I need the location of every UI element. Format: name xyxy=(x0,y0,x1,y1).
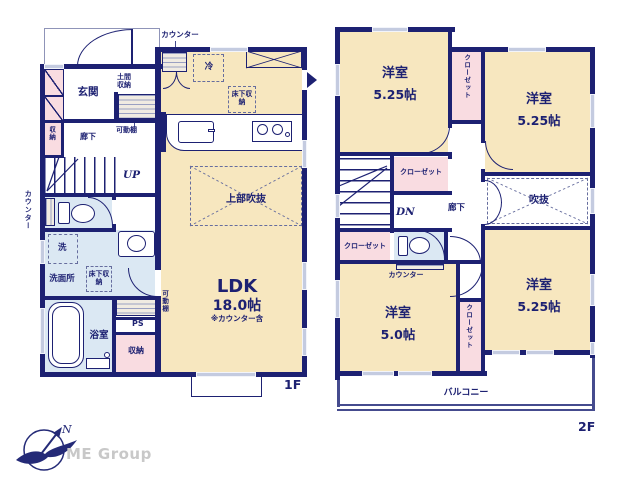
toilet-counter-1f xyxy=(45,198,55,226)
label-counter-2f: カウンター xyxy=(382,271,430,279)
label-room-tr-size: 5.25帖 xyxy=(510,114,568,129)
balcony-rail xyxy=(337,377,340,407)
label-room-br-size: 5.25帖 xyxy=(510,300,568,315)
door-arc xyxy=(450,236,481,263)
window-marker xyxy=(590,274,595,306)
label-atrium: 吹抜 xyxy=(518,195,560,207)
door-arc xyxy=(450,264,483,297)
label-closet-hall: クローゼット xyxy=(394,168,448,176)
wall xyxy=(114,92,118,120)
balcony-rail xyxy=(337,409,595,411)
wall xyxy=(116,332,156,335)
label-closet-top: クローゼット xyxy=(462,54,470,120)
logo-text: ME Group xyxy=(66,446,152,464)
window-marker xyxy=(40,240,45,264)
service-door-marker xyxy=(307,72,317,88)
movable-shelf-unit xyxy=(116,298,156,316)
vanity-basin xyxy=(127,235,146,252)
label-floor2: 2F xyxy=(578,420,595,435)
label-pipe-space: PS xyxy=(132,319,144,328)
toilet-tank-2f xyxy=(398,236,408,256)
wall xyxy=(40,372,307,377)
window-marker xyxy=(302,140,307,168)
label-underfloor-kitchen: 床下収納 xyxy=(231,90,253,106)
wall xyxy=(40,228,116,232)
window-marker xyxy=(210,47,248,52)
balcony-rail xyxy=(337,404,595,406)
label-room-br-name: 洋室 xyxy=(516,278,562,293)
window-marker xyxy=(44,64,64,69)
label-balcony: バルコニー xyxy=(430,388,502,399)
window-marker xyxy=(590,342,595,355)
stairs-2f-winder-lines xyxy=(339,158,390,228)
wall xyxy=(456,298,485,302)
label-doma-storage: 土間収納 xyxy=(114,73,134,90)
floorplan-canvas: カウンター 土間収納 可動棚 玄関 収納 廊下 UP カウンター 洗 洗面所 床… xyxy=(0,0,640,480)
bath-faucet xyxy=(104,352,110,358)
label-hallway-2f: 廊下 xyxy=(448,203,465,213)
label-room-tl-size: 5.25帖 xyxy=(366,88,424,103)
wall xyxy=(448,120,485,124)
wall xyxy=(40,193,161,197)
label-ldk-name: LDK xyxy=(207,276,267,297)
label-movable-shelf-bottom: 可動棚 xyxy=(160,290,168,328)
toilet-tank-1f xyxy=(58,202,70,224)
label-fridge: 冷 xyxy=(200,62,218,72)
label-stairs-down: DN xyxy=(396,206,415,218)
bath-fixture xyxy=(86,358,110,369)
kitchen-wall-stub xyxy=(161,112,166,152)
wall xyxy=(483,226,595,230)
label-closet-left: クローゼット xyxy=(340,242,390,250)
shoe-cabinet-cell xyxy=(44,69,64,96)
label-atrium-upper: 上部吹抜 xyxy=(200,194,292,206)
window-marker xyxy=(362,371,394,376)
label-washer: 洗 xyxy=(58,243,67,253)
label-stairs-up: UP xyxy=(123,169,140,181)
label-counter-top: カウンター xyxy=(148,31,212,40)
label-entrance: 玄関 xyxy=(70,86,106,98)
label-counter-left: カウンター xyxy=(24,190,32,254)
kitchen-sink xyxy=(178,121,214,143)
window-marker xyxy=(196,372,256,377)
balcony-rail xyxy=(592,355,595,411)
window-marker xyxy=(40,308,45,354)
stove-burner xyxy=(257,124,268,135)
window-marker xyxy=(590,94,595,128)
wall xyxy=(335,228,452,232)
window-marker xyxy=(526,350,554,355)
ldk-closet-x xyxy=(246,51,302,68)
label-room-tr-name: 洋室 xyxy=(516,92,562,107)
label-bathroom: 浴室 xyxy=(84,330,114,341)
window-marker xyxy=(398,371,432,376)
window-marker xyxy=(590,188,595,214)
label-storage-bottom: 収納 xyxy=(122,346,150,355)
window-marker xyxy=(372,27,408,32)
stairs-1f-winder-lines xyxy=(44,157,120,193)
window-marker xyxy=(335,194,340,218)
porch-step xyxy=(191,376,262,397)
wall xyxy=(390,191,452,195)
label-underfloor-washroom: 床下収納 xyxy=(88,270,110,286)
wall xyxy=(61,121,64,157)
label-movable-shelf-top: 可動棚 xyxy=(116,126,137,134)
label-room-bl-size: 5.0帖 xyxy=(373,328,423,343)
label-washroom: 洗面所 xyxy=(42,274,82,284)
wall xyxy=(483,172,595,176)
doma-shelf xyxy=(118,94,158,119)
label-hallway-1f: 廊下 xyxy=(74,132,102,141)
window-marker xyxy=(492,350,520,355)
wall xyxy=(40,296,161,300)
label-room-bl-name: 洋室 xyxy=(375,306,421,321)
window-marker xyxy=(508,47,546,52)
window-marker xyxy=(335,64,340,96)
label-floor1: 1F xyxy=(284,378,301,393)
shoe-cabinet-cell xyxy=(44,96,64,122)
label-ldk-size: 18.0帖 xyxy=(202,298,272,315)
stove-burner xyxy=(272,124,283,135)
counter-2f-unit xyxy=(396,264,444,270)
ldk-counter-unit xyxy=(162,52,187,72)
window-marker xyxy=(302,328,307,356)
wall xyxy=(64,119,161,123)
stove-burner-small xyxy=(285,132,290,137)
door-gap xyxy=(481,143,485,169)
compass-north-label: N xyxy=(61,423,72,436)
label-ldk-note: ※カウンター含 xyxy=(194,315,280,324)
label-closet-bottom: クローゼット xyxy=(464,304,472,370)
label-storage-left: 収納 xyxy=(47,126,55,156)
window-marker xyxy=(335,280,340,318)
label-room-tl-name: 洋室 xyxy=(372,66,418,81)
kitchen-faucet xyxy=(208,129,215,132)
window-marker xyxy=(302,262,307,290)
bathtub-inner xyxy=(52,306,80,364)
